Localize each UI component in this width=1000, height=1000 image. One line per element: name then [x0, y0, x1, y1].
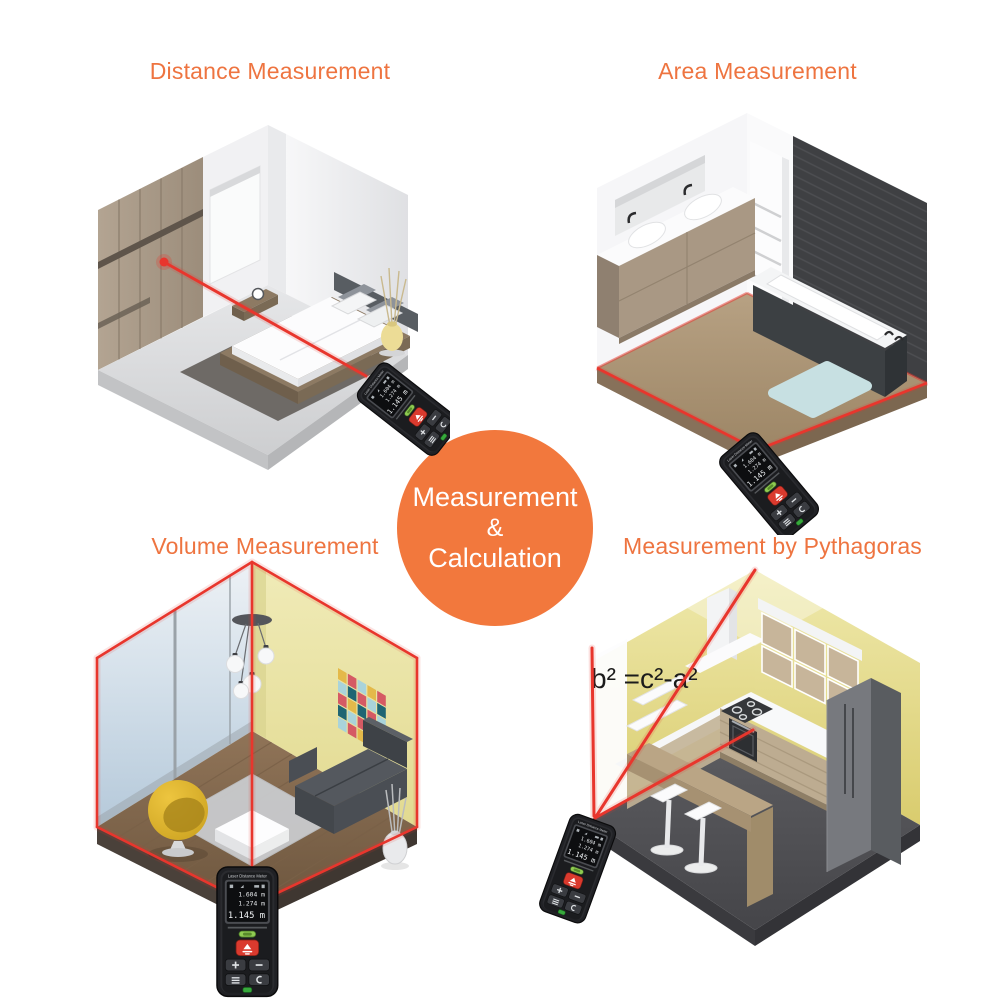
- product-infographic: Laser Distance Meter 1.604 m 1.274 m 1.1…: [0, 0, 1000, 1000]
- alarm-clock: [253, 289, 264, 300]
- scene-kitchen: b² =c²-a²: [515, 558, 965, 960]
- laser-side-b: [592, 648, 594, 816]
- title-pythagoras: Measurement by Pythagoras: [570, 533, 975, 560]
- title-volume: Volume Measurement: [75, 533, 455, 560]
- title-area: Area Measurement: [565, 58, 950, 85]
- title-distance: Distance Measurement: [80, 58, 460, 85]
- badge-line-2: &: [487, 514, 504, 543]
- scene-bathroom: [585, 105, 970, 535]
- ball-chair: [148, 780, 209, 862]
- fridge: [827, 678, 901, 872]
- laser-meter-device: [217, 867, 278, 996]
- laser-meter-device: [537, 812, 618, 925]
- scene-living-room: [70, 558, 470, 1000]
- scene-bedroom: [80, 110, 450, 510]
